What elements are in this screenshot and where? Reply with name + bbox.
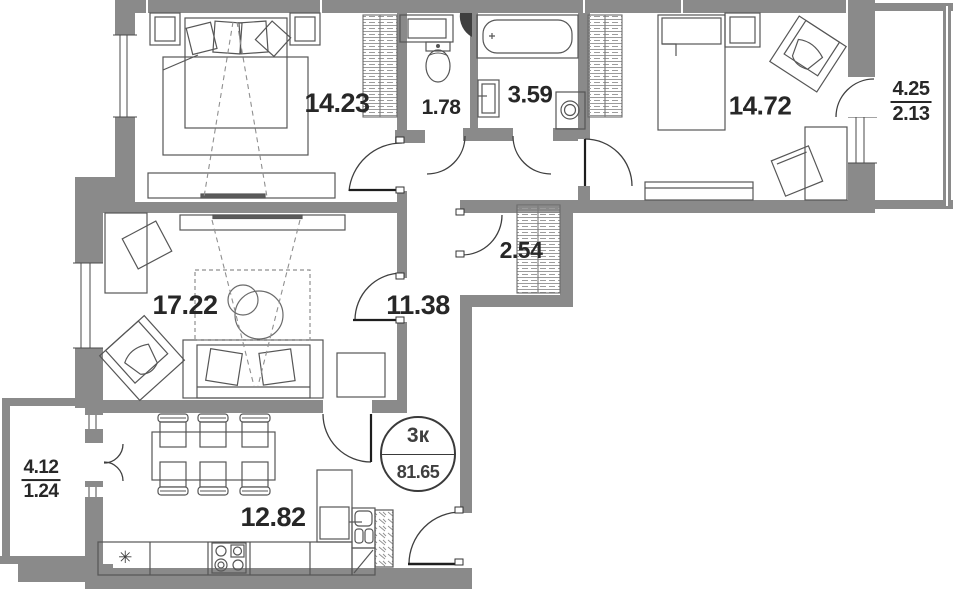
nightstand [725,13,760,47]
balcony-right-reduced-area: 2.13 [891,103,932,125]
area-label-bathroom: 3.59 [508,82,553,107]
sofa [183,340,323,398]
desk-living [105,213,147,293]
door-kitchen [323,414,371,462]
area-label-bedroom2: 14.72 [729,92,792,119]
side-table [337,353,385,397]
area-label-toilet: 1.78 [422,97,461,119]
area-label-hallway: 11.38 [386,291,450,319]
area-label-balcony-left: 4.12 1.24 [22,458,61,502]
dining-chairs [158,414,270,495]
toilet [426,42,450,82]
freezer-icon: ✳ [118,549,132,567]
vent-shaft [460,13,472,37]
nightstand [290,13,320,45]
sink-toilet [400,15,453,42]
floor-lamp [228,285,283,339]
tv-console-bedroom1 [148,173,335,198]
sink-bathroom [478,80,499,117]
balcony-left-reduced-area: 1.24 [22,481,61,502]
dining-table [152,432,275,480]
drying-rack [375,510,393,567]
plan-drawing [0,0,954,589]
area-label-bedroom1: 14.23 [304,89,369,117]
area-label-living: 17.22 [152,291,217,319]
area-label-kitchen: 12.82 [240,503,305,531]
area-label-storage: 2.54 [500,238,543,262]
window-kitchen-balcony-1 [83,415,105,429]
apartment-type-badge: 3к 81.65 [380,416,456,492]
window-kitchen-balcony-2 [83,487,105,497]
window-bedroom1 [113,35,137,117]
armchair-living [100,316,185,401]
door-entry [408,512,461,564]
balcony-right-full-area: 4.25 [891,79,932,103]
double-bed [163,18,308,155]
single-bed [658,15,725,130]
door-bathroom [513,136,551,174]
wardrobe-bedroom2 [588,15,622,117]
area-label-balcony-right: 4.25 2.13 [891,79,932,125]
door-kitchen-balcony [104,444,123,481]
door-bedroom2 [585,139,632,186]
balcony-left-full-area: 4.12 [22,458,61,481]
door-bedroom1 [349,143,402,191]
walls [0,0,953,589]
window-bedroom2-balcony [848,117,877,163]
nightstand [150,13,180,45]
chair-bedroom2 [771,146,822,196]
kitchen-sink [352,508,375,575]
window-living [73,263,103,348]
tv-console-living [180,215,345,230]
dresser [645,182,753,200]
bathtub [477,15,578,58]
floor-plan: 14.23 1.78 3.59 14.72 17.22 11.38 2.54 1… [0,0,954,589]
desk-bedroom2 [805,127,847,200]
armchair-bedroom2 [770,16,846,92]
